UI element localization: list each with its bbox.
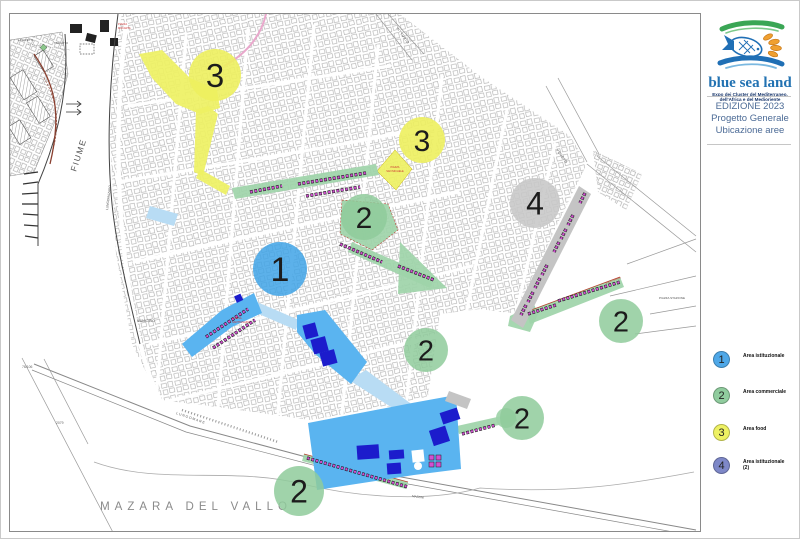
tragitto-label: TRAGITTO bbox=[54, 41, 69, 45]
city-map: FIUME LUNGOMAZARO MUNICIPIO LA CIVETTA T… bbox=[10, 14, 700, 531]
harbour-piers bbox=[22, 172, 38, 238]
marker-2-commerciale-a: 2 bbox=[341, 194, 387, 240]
map-panel: FIUME LUNGOMAZARO MUNICIPIO LA CIVETTA T… bbox=[9, 13, 701, 532]
chiesa-label-2: SANT'IGNAZIO bbox=[232, 320, 250, 324]
legend-label-1: Area istituzionale bbox=[743, 354, 784, 360]
poster-page: FIUME LUNGOMAZARO MUNICIPIO LA CIVETTA T… bbox=[0, 0, 800, 539]
svg-text:1: 1 bbox=[271, 251, 290, 289]
mokarta-label-2: MOKARTA bbox=[118, 26, 131, 30]
edition-line1: EDIZIONE 2023 bbox=[703, 101, 797, 113]
river-label: FIUME bbox=[68, 137, 88, 172]
svg-text:2: 2 bbox=[356, 202, 373, 235]
svg-text:2: 2 bbox=[418, 335, 434, 367]
svg-text:3: 3 bbox=[206, 57, 224, 94]
edition-block: EDIZIONE 2023 Progetto Generale Ubicazio… bbox=[703, 101, 797, 137]
mazzini-label: MAZZINI bbox=[412, 494, 425, 500]
flow-arrows bbox=[66, 101, 81, 115]
west-bank-fabric bbox=[10, 32, 68, 176]
parcel-number-b: 2079 bbox=[56, 421, 64, 425]
chiesa-label-1: CHIESA bbox=[232, 316, 242, 320]
legend-item-commerciale: 2 Area commerciale bbox=[713, 387, 797, 405]
svg-text:2: 2 bbox=[514, 403, 530, 435]
legend-label-4: Area istituzionale (2) bbox=[743, 460, 784, 471]
marker-4-istituzionale2: 4 bbox=[510, 178, 560, 228]
wheat-glyph bbox=[762, 33, 781, 58]
edition-line2: Progetto Generale bbox=[703, 113, 797, 125]
legend-label-2: Area commerciale bbox=[743, 390, 786, 396]
legend-item-istituzionale-2: 4 Area istituzionale (2) bbox=[713, 457, 797, 475]
legend-label-4-suffix: (2) bbox=[743, 465, 749, 471]
marker-2-commerciale-b: 2 bbox=[404, 328, 448, 372]
marker-2-commerciale-d: 2 bbox=[500, 396, 544, 440]
piazza-sm-label-1: PIAZZA bbox=[390, 165, 399, 169]
marker-2-commerciale-c: 2 bbox=[599, 299, 643, 343]
lungomare-label: LUNGOMARE bbox=[176, 411, 206, 425]
svg-text:2: 2 bbox=[290, 474, 308, 510]
sidebar: blue sea land Expo dei Cluster del Medit… bbox=[703, 13, 797, 530]
svg-text:3: 3 bbox=[414, 125, 431, 158]
legend-label-4-text: Area istituzionale bbox=[743, 459, 784, 465]
logo-title: blue sea land bbox=[706, 76, 794, 91]
legend-dot-1: 1 bbox=[713, 351, 730, 368]
edition-line3: Ubicazione aree bbox=[703, 125, 797, 137]
marker-2-commerciale-e: 2 bbox=[274, 466, 324, 516]
marker-3-food-b: 3 bbox=[399, 117, 445, 163]
svg-text:2: 2 bbox=[613, 306, 629, 338]
divider-bottom bbox=[707, 144, 791, 145]
blue-sea-land-logo: blue sea land Expo dei Cluster del Medit… bbox=[706, 19, 794, 103]
stazione-label: PIAZZA STAZIONE bbox=[659, 296, 685, 300]
legend-dot-4: 4 bbox=[713, 457, 730, 474]
divider-top bbox=[707, 96, 791, 97]
civetta-label: LA CIVETTA bbox=[18, 38, 34, 42]
parcel-number-a: 76/106 bbox=[22, 365, 32, 369]
legend-item-food: 3 Area food bbox=[713, 424, 797, 442]
city-name-label: MAZARA DEL VALLO bbox=[100, 501, 292, 513]
legend-dot-3: 3 bbox=[713, 424, 730, 441]
svg-text:4: 4 bbox=[526, 186, 544, 222]
marker-1-istituzionale: 1 bbox=[253, 242, 307, 296]
mokarta-label-1: PIAZZA bbox=[118, 22, 127, 26]
legend-item-istituzionale: 1 Area istituzionale bbox=[713, 351, 797, 369]
municipio-label: MUNICIPIO bbox=[137, 319, 155, 323]
north-bank-buildings bbox=[70, 20, 118, 54]
logo-fish-icon bbox=[706, 19, 794, 71]
legend-dot-2: 2 bbox=[713, 387, 730, 404]
legend-label-3: Area food bbox=[743, 427, 766, 433]
marker-3-food-a: 3 bbox=[189, 49, 241, 101]
piazza-sm-label-2: SAN MICHELE bbox=[386, 169, 404, 173]
